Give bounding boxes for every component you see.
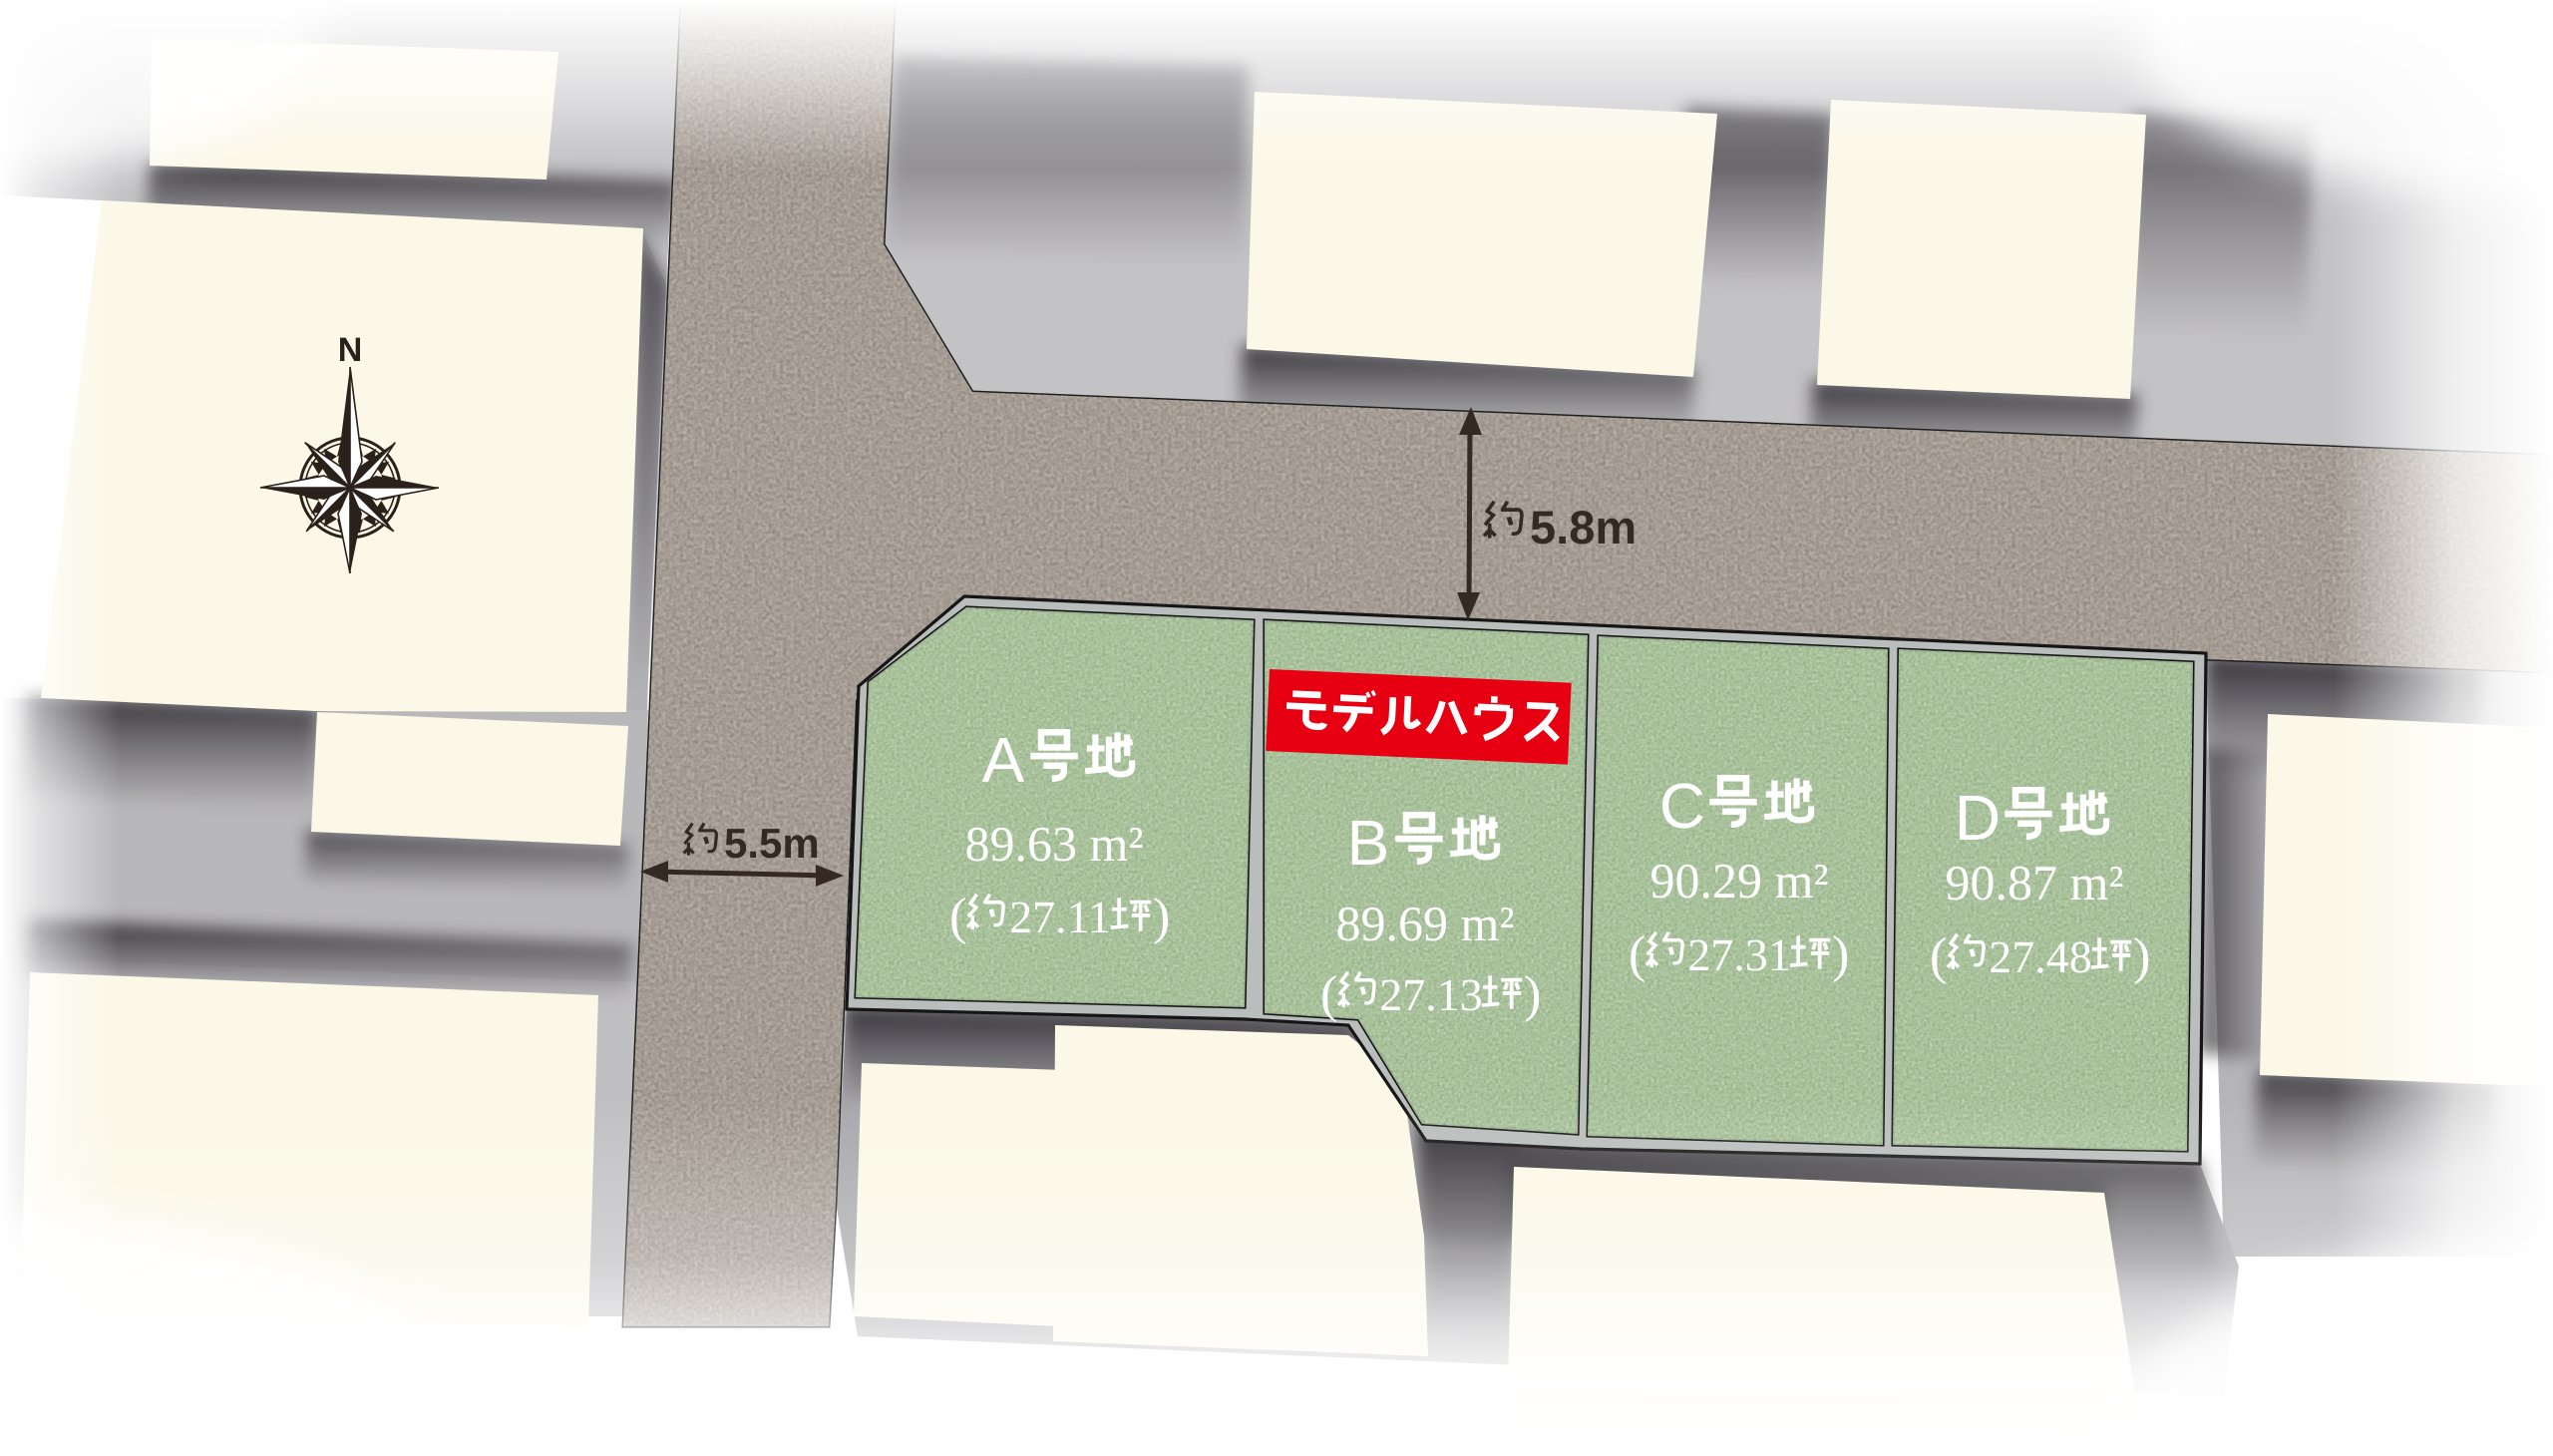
svg-text:C: C <box>1659 770 1705 842</box>
svg-text:(: ( <box>1930 928 1947 985</box>
svg-text:90.87 m²: 90.87 m² <box>1946 855 2124 910</box>
svg-text:N: N <box>338 331 363 369</box>
svg-text:): ) <box>1832 926 1849 983</box>
svg-text:5.8m: 5.8m <box>1530 501 1637 553</box>
svg-text:(: ( <box>1629 926 1645 983</box>
svg-text:): ) <box>1524 966 1541 1023</box>
svg-text:27.48: 27.48 <box>1989 931 2092 982</box>
svg-text:27.13: 27.13 <box>1379 969 1483 1020</box>
svg-text:89.63 m²: 89.63 m² <box>965 816 1144 872</box>
svg-text:A: A <box>982 724 1025 796</box>
svg-text:27.31: 27.31 <box>1687 929 1791 980</box>
svg-text:89.69 m²: 89.69 m² <box>1336 896 1515 951</box>
svg-text:): ) <box>1153 889 1170 945</box>
svg-text:(: ( <box>1320 966 1337 1023</box>
svg-text:B: B <box>1347 807 1390 879</box>
svg-text:90.29 m²: 90.29 m² <box>1650 853 1829 909</box>
svg-text:5.5m: 5.5m <box>724 820 820 867</box>
svg-text:(: ( <box>949 889 966 945</box>
svg-text:27.11: 27.11 <box>1009 892 1111 942</box>
svg-text:): ) <box>2133 928 2150 985</box>
svg-text:D: D <box>1955 782 2001 854</box>
